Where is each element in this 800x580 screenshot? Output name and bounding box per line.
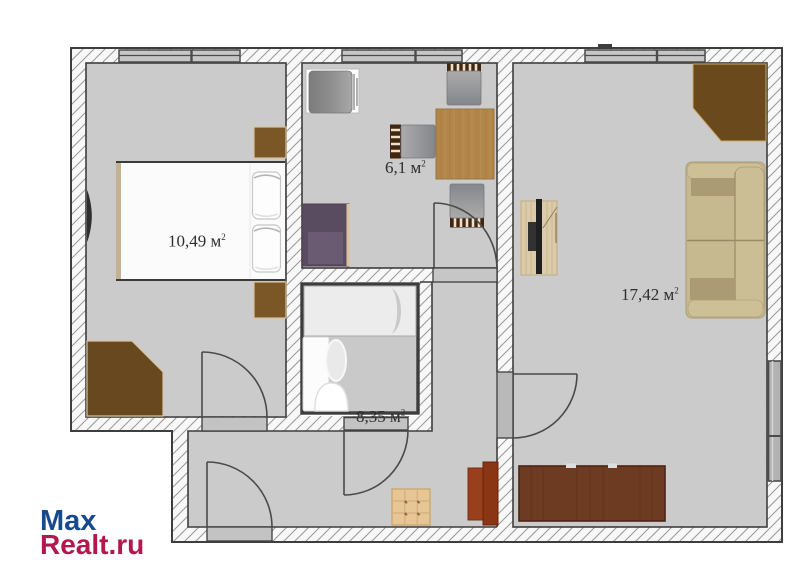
- svg-text:Realt.ru: Realt.ru: [40, 529, 144, 560]
- svg-text:8,35 м2: 8,35 м2: [356, 407, 405, 426]
- svg-text:17,42 м2: 17,42 м2: [621, 285, 679, 304]
- svg-text:10,49 м2: 10,49 м2: [168, 232, 226, 251]
- svg-text:6,1 м2: 6,1 м2: [385, 158, 426, 177]
